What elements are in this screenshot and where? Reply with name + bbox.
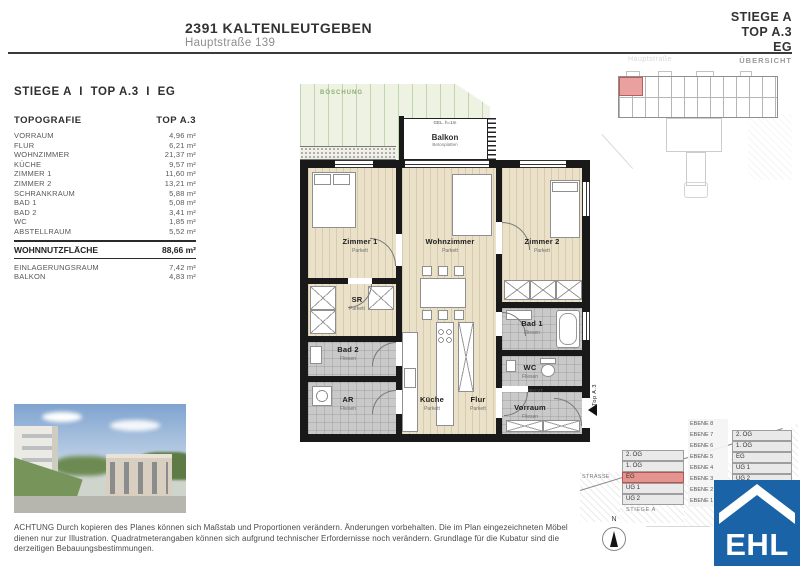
cloud [110, 420, 160, 431]
room-label-sub: Parkett [458, 405, 498, 414]
level-box: UG 2 [622, 494, 684, 505]
room-label-zimmer2: Zimmer 2 Parkett [502, 238, 582, 255]
room-area: 5,88 m² [169, 189, 196, 199]
room-name: WC [14, 217, 27, 227]
room-name: ZIMMER 1 [14, 169, 51, 179]
chair-icon [422, 310, 432, 320]
room-area: 11,60 m² [165, 169, 196, 179]
site-highlighted-unit [619, 77, 643, 96]
wall [308, 376, 396, 382]
level-box: EG [622, 472, 684, 483]
sheet-stiege: STIEGE A [731, 10, 792, 25]
road [14, 496, 186, 513]
sink-icon [404, 368, 416, 388]
room-name: ABSTELLRAUM [14, 227, 71, 237]
balcony-sub: Betonplatten [403, 142, 487, 147]
stiege-label: STIEGE A [626, 507, 656, 513]
wardrobe-icon [310, 310, 336, 334]
room-area: 4,83 m² [169, 272, 196, 282]
sheet-top: TOP A.3 [731, 25, 792, 40]
level-box: EG [732, 452, 792, 463]
balcony-label: Balkon [403, 133, 487, 142]
balcony-railing [488, 118, 496, 162]
topografie-table: VORRAUM 4,96 m² FLUR 6,21 m² WOHNZIMMER … [14, 131, 196, 282]
table-row: ZIMMER 1 11,60 m² [14, 169, 196, 179]
ebene-label: EBENE 8 [688, 419, 728, 430]
room-label-wc: WC Fliesen [512, 364, 548, 381]
room-label-sub: Fliesen [318, 355, 378, 364]
room-label-sub: Fliesen [512, 373, 548, 382]
room-area: 1,85 m² [169, 217, 196, 227]
room-name: BALKON [14, 272, 46, 282]
level-box: 1. OG [732, 441, 792, 452]
north-label: N [596, 516, 632, 523]
ebene-label: EBENE 5 [688, 452, 728, 463]
room-label-sub: Fliesen [318, 405, 378, 414]
stove-icon [437, 328, 453, 344]
room-area: 4,96 m² [169, 131, 196, 141]
roof-icon [714, 484, 800, 532]
room-label-text: Zimmer 2 [525, 237, 560, 246]
room-area: 7,42 m² [169, 263, 196, 273]
site-lower-wing [666, 118, 722, 152]
wardrobe-icon [504, 280, 530, 300]
room-name: BAD 1 [14, 198, 37, 208]
room-area: 3,41 m² [169, 208, 196, 218]
wardrobe-icon [506, 420, 543, 432]
room-label-ar: AR Fliesen [318, 396, 378, 413]
level-box: UG 1 [732, 463, 792, 474]
ehl-logo: EHL [714, 480, 800, 566]
room-name: FLUR [14, 141, 34, 151]
total-row: WOHNNUTZFLÄCHE 88,66 m² [14, 240, 196, 259]
site-terrain-hatch [748, 114, 792, 180]
railing-label: GEL. h=1m [403, 120, 487, 125]
wall [496, 336, 502, 388]
topografie-header: TOPOGRAFIE TOP A.3 [14, 115, 196, 126]
wall [308, 278, 348, 284]
wardrobe-icon [556, 280, 582, 300]
room-area: 5,52 m² [169, 227, 196, 237]
project-title: 2391 KALTENLEUTGEBEN [185, 20, 372, 36]
room-name: VORRAUM [14, 131, 54, 141]
room-label-bad2: Bad 2 Fliesen [318, 346, 378, 363]
room-label-sub: Parkett [320, 247, 400, 256]
shaft-label: RH+VT [528, 388, 543, 393]
site-plan [600, 64, 796, 212]
left-level-stack: 2. OG 1. OG EG UG 1 UG 2 [622, 450, 684, 505]
level-box: UG 1 [622, 483, 684, 494]
compass-circle [602, 527, 626, 551]
room-label-sub: Fliesen [506, 329, 558, 338]
room-name: EINLAGERUNGSRAUM [14, 263, 99, 273]
strasse-label: STRASSE [582, 474, 610, 480]
room-label-text: Bad 2 [337, 345, 358, 354]
project-address: Hauptstraße 139 [185, 37, 275, 49]
room-label-sub: Parkett [404, 405, 460, 414]
room-label-bad1: Bad 1 Fliesen [506, 320, 558, 337]
north-arrow-icon [610, 531, 618, 547]
compass: N [596, 516, 632, 562]
room-name: BAD 2 [14, 208, 37, 218]
header-rule [8, 52, 792, 54]
wardrobe-icon [530, 280, 556, 300]
chair-icon [454, 266, 464, 276]
room-label-sub: Parkett [332, 305, 382, 314]
room-name: ZIMMER 2 [14, 179, 51, 189]
chair-icon [438, 266, 448, 276]
embankment-label: BÖSCHUNG [320, 90, 363, 96]
unit-heading: STIEGE A I TOP A.3 I EG [14, 86, 175, 98]
dining-table-icon [420, 278, 466, 308]
room-label-kueche: Küche Parkett [404, 396, 460, 413]
wall [396, 168, 402, 234]
level-box: 1. OG [622, 461, 684, 472]
window [520, 160, 566, 168]
site-slope-line [602, 134, 634, 169]
ebene-label: EBENE 4 [688, 463, 728, 474]
level-box: 2. OG [732, 430, 792, 441]
sheet-id-block: STIEGE A TOP A.3 EG [731, 10, 792, 55]
window [582, 182, 590, 216]
floor-plan: BÖSCHUNG GEL. h=1m Balkon Betonplatten [300, 82, 598, 442]
topografie-col-label: TOPOGRAFIE [14, 115, 82, 126]
wall [496, 168, 502, 222]
total-value: 88,66 m² [162, 245, 196, 255]
chair-icon [454, 310, 464, 320]
wall [502, 302, 582, 308]
frame-line [646, 526, 710, 527]
table-row: WC 1,85 m² [14, 217, 196, 227]
table-row: KÜCHE 9,57 m² [14, 160, 196, 170]
ebene-label: EBENE 6 [688, 441, 728, 452]
room-area: 5,08 m² [169, 198, 196, 208]
plan-sheet: 2391 KALTENLEUTGEBEN Hauptstraße 139 STI… [0, 0, 800, 566]
table-row: BAD 1 5,08 m² [14, 198, 196, 208]
site-stair-foot [684, 182, 708, 198]
wall [399, 116, 404, 162]
disclaimer-text: ACHTUNG Durch kopieren des Planes können… [14, 523, 592, 555]
chair-icon [422, 266, 432, 276]
cloud [42, 412, 82, 422]
bathtub-inner [559, 313, 577, 345]
room-label-flur: Flur Parkett [458, 396, 498, 413]
room-label-vorraum: Vorraum Fliesen [498, 404, 562, 421]
gravel-strip [300, 146, 396, 160]
room-area-list: VORRAUM 4,96 m² FLUR 6,21 m² WOHNZIMMER … [14, 131, 196, 237]
table-row: ZIMMER 2 13,21 m² [14, 179, 196, 189]
room-label-text: SR [352, 295, 363, 304]
wall [502, 350, 582, 356]
room-label-text: Küche [420, 395, 444, 404]
room-area: 21,37 m² [165, 150, 196, 160]
room-area: 13,21 m² [165, 179, 196, 189]
room-label-sub: Parkett [502, 247, 582, 256]
overview-street-label: Hauptstraße [628, 56, 672, 63]
room-area: 6,21 m² [169, 141, 196, 151]
table-row: VORRAUM 4,96 m² [14, 131, 196, 141]
table-row: ABSTELLRAUM 5,52 m² [14, 227, 196, 237]
ebene-label: EBENE 7 [688, 430, 728, 441]
table-row: FLUR 6,21 m² [14, 141, 196, 151]
table-row: BALKON 4,83 m² [14, 272, 196, 282]
room-label-text: Zimmer 1 [343, 237, 378, 246]
room-label-text: Wohnzimmer [426, 237, 475, 246]
topografie-col-top: TOP A.3 [156, 115, 196, 126]
project-photo [14, 404, 186, 513]
table-row: SCHRANKRAUM 5,88 m² [14, 189, 196, 199]
room-name: WOHNZIMMER [14, 150, 69, 160]
room-name: SCHRANKRAUM [14, 189, 75, 199]
extras-list: EINLAGERUNGSRAUM 7,42 m² BALKON 4,83 m² [14, 263, 196, 282]
entry-label: Top A.3 [592, 384, 598, 406]
pillow-icon [314, 174, 331, 185]
wall [308, 336, 396, 342]
window [335, 160, 373, 168]
room-name: KÜCHE [14, 160, 41, 170]
chair-icon [438, 310, 448, 320]
level-box: 2. OG [622, 450, 684, 461]
table-row: BAD 2 3,41 m² [14, 208, 196, 218]
balcony-door [405, 160, 489, 168]
site-stair-core [686, 152, 706, 186]
pillow-icon [333, 174, 350, 185]
right-level-stack: 2. OG 1. OG EG UG 1 UG 2 [732, 430, 792, 485]
pillow-icon [552, 182, 578, 192]
room-label-sub: Fliesen [498, 413, 562, 422]
table-row: EINLAGERUNGSRAUM 7,42 m² [14, 263, 196, 273]
building-right-windows [110, 462, 168, 494]
balcony: GEL. h=1m Balkon Betonplatten [402, 118, 488, 160]
sofa-icon [452, 174, 492, 236]
ehl-logo-text: EHL [714, 527, 800, 563]
room-label-text: Bad 1 [521, 319, 542, 328]
room-label-sub: Parkett [404, 247, 496, 256]
room-area: 9,57 m² [169, 160, 196, 170]
room-label-text: Flur [471, 395, 486, 404]
window [582, 312, 590, 340]
total-label: WOHNNUTZFLÄCHE [14, 245, 98, 255]
room-label-zimmer1: Zimmer 1 Parkett [320, 238, 400, 255]
tall-cabinet-icon [458, 322, 474, 392]
room-label-sr: SR Parkett [332, 296, 382, 313]
table-row: WOHNZIMMER 21,37 m² [14, 150, 196, 160]
room-label-wohnzimmer: Wohnzimmer Parkett [404, 238, 496, 255]
room-label-text: Vorraum [514, 403, 546, 412]
wall [372, 278, 402, 284]
room-label-text: WC [524, 363, 537, 372]
room-label-text: AR [342, 395, 353, 404]
